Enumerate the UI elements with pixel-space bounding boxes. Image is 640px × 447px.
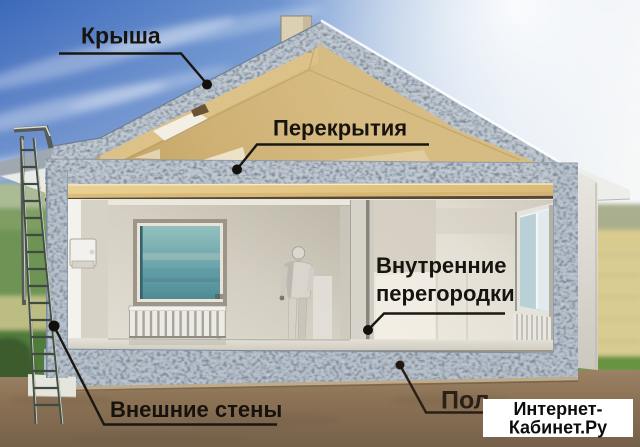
- svg-text:Крыша: Крыша: [81, 23, 161, 49]
- svg-text:перегородки: перегородки: [376, 281, 515, 306]
- svg-text:Кабинет.Ру: Кабинет.Ру: [509, 418, 607, 438]
- svg-text:Перекрытия: Перекрытия: [273, 116, 407, 141]
- svg-text:Пол: Пол: [441, 387, 490, 415]
- svg-text:Внутренние: Внутренние: [376, 253, 506, 278]
- svg-text:Интернет-: Интернет-: [513, 399, 602, 419]
- svg-text:Внешние стены: Внешние стены: [110, 397, 282, 422]
